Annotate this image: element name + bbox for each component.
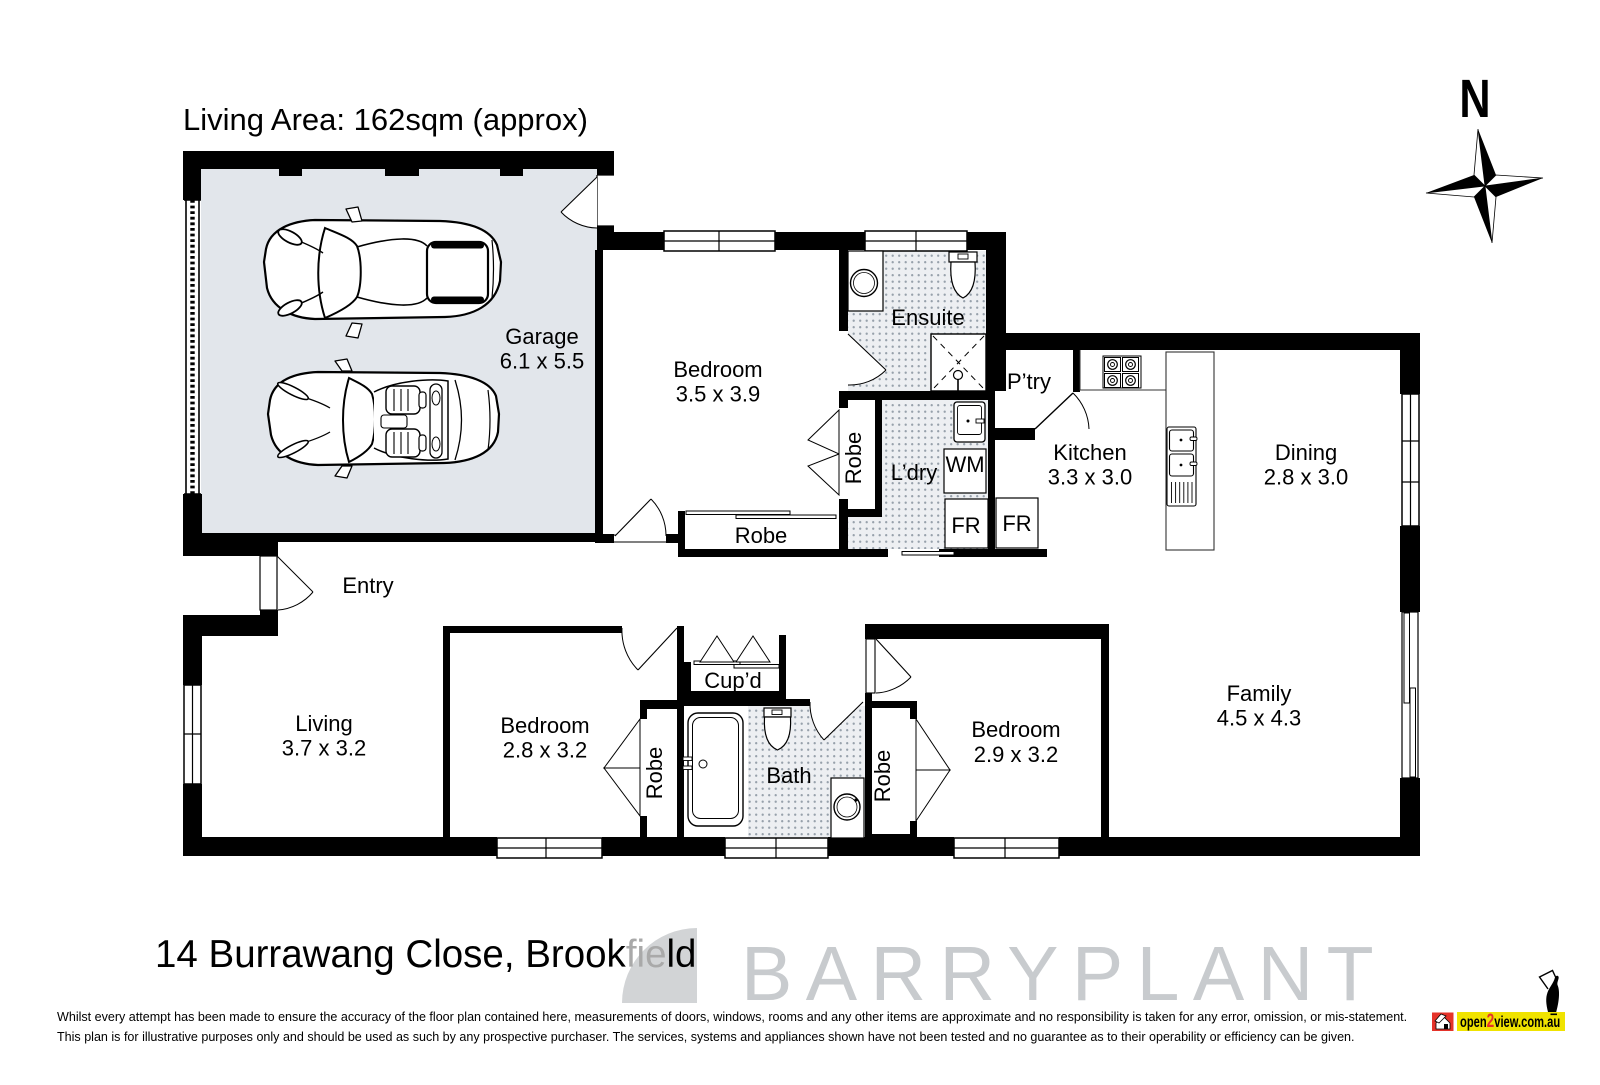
svg-text:Bath: Bath	[766, 763, 811, 788]
svg-text:Whilst every attempt has been: Whilst every attempt has been made to en…	[57, 1010, 1407, 1024]
svg-text:Bedroom: Bedroom	[971, 717, 1060, 742]
svg-text:Bedroom: Bedroom	[673, 357, 762, 382]
svg-text:2.8 x 3.2: 2.8 x 3.2	[503, 738, 587, 763]
svg-text:Living: Living	[295, 711, 352, 736]
svg-text:Robe: Robe	[735, 523, 788, 548]
svg-text:open2view.com.au: open2view.com.au	[1460, 1010, 1560, 1032]
svg-text:N: N	[1459, 70, 1490, 130]
svg-text:Garage: Garage	[505, 324, 578, 349]
svg-text:BARRYPLANT: BARRYPLANT	[741, 931, 1387, 1017]
svg-text:WM: WM	[945, 452, 984, 477]
svg-text:P’try: P’try	[1007, 369, 1051, 394]
svg-text:Family: Family	[1227, 681, 1292, 706]
svg-text:Dining: Dining	[1275, 440, 1337, 465]
svg-text:6.1 x 5.5: 6.1 x 5.5	[500, 349, 584, 374]
svg-text:Entry: Entry	[342, 573, 393, 598]
svg-text:Robe: Robe	[642, 747, 667, 800]
svg-text:L’dry: L’dry	[891, 460, 937, 485]
svg-text:2.9 x 3.2: 2.9 x 3.2	[974, 742, 1058, 767]
svg-text:Ensuite: Ensuite	[891, 305, 964, 330]
svg-text:Living Area: 162sqm (approx): Living Area: 162sqm (approx)	[183, 102, 588, 137]
svg-text:3.7 x 3.2: 3.7 x 3.2	[282, 736, 366, 761]
svg-text:3.5 x 3.9: 3.5 x 3.9	[676, 382, 760, 407]
svg-text:Cup’d: Cup’d	[704, 668, 761, 693]
svg-text:3.3 x 3.0: 3.3 x 3.0	[1048, 465, 1132, 490]
svg-text:4.5 x 4.3: 4.5 x 4.3	[1217, 706, 1301, 731]
svg-text:FR: FR	[951, 513, 980, 538]
svg-text:Bedroom: Bedroom	[500, 713, 589, 738]
svg-text:Robe: Robe	[870, 750, 895, 803]
svg-text:Robe: Robe	[841, 432, 866, 485]
svg-text:FR: FR	[1002, 511, 1031, 536]
svg-text:Kitchen: Kitchen	[1053, 440, 1126, 465]
svg-text:14 Burrawang Close, Brookfield: 14 Burrawang Close, Brookfield	[155, 933, 696, 976]
svg-text:2.8 x 3.0: 2.8 x 3.0	[1264, 465, 1348, 490]
svg-text:This plan is for illustrative: This plan is for illustrative purposes o…	[57, 1030, 1355, 1044]
